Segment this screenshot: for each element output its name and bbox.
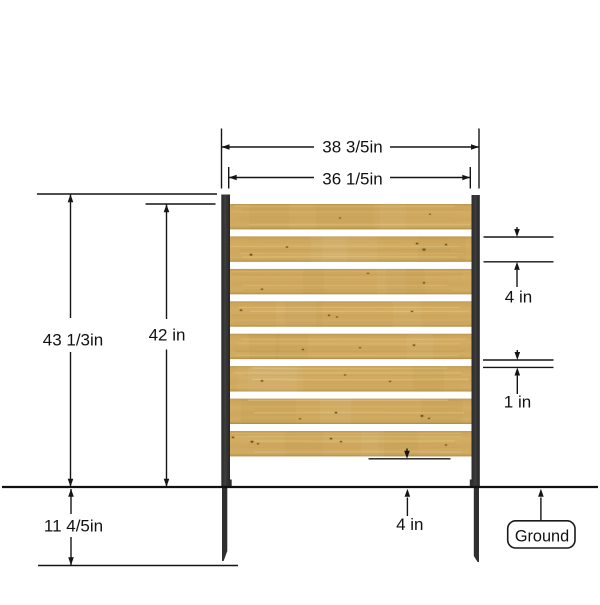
svg-text:11 4/5in: 11 4/5in <box>44 517 103 536</box>
svg-text:42 in: 42 in <box>149 326 186 345</box>
svg-text:38 3/5in: 38 3/5in <box>322 138 383 157</box>
svg-text:4 in: 4 in <box>396 515 423 534</box>
svg-text:43 1/3in: 43 1/3in <box>43 331 104 350</box>
svg-text:Ground: Ground <box>515 528 569 546</box>
svg-text:4 in: 4 in <box>505 287 532 306</box>
svg-text:36 1/5in: 36 1/5in <box>322 169 383 188</box>
svg-text:1 in: 1 in <box>504 392 531 411</box>
